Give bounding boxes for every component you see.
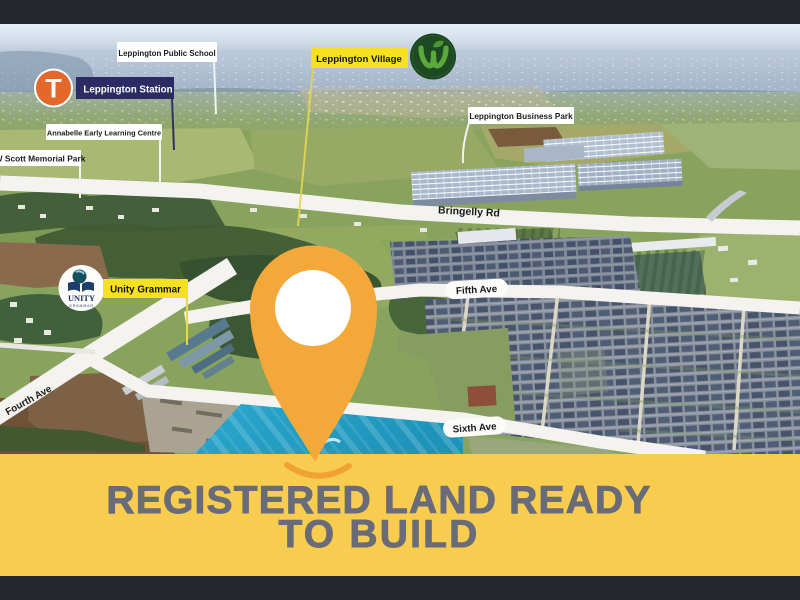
svg-text:T: T: [45, 74, 62, 104]
svg-text:Fifth Ave: Fifth Ave: [456, 284, 498, 297]
svg-text:Annabelle Early Learning Centr: Annabelle Early Learning Centre: [47, 129, 161, 138]
svg-text:Leppington Village: Leppington Village: [316, 54, 402, 65]
svg-text:W Scott Memorial Park: W Scott Memorial Park: [0, 154, 86, 164]
svg-text:TO BUILD: TO BUILD: [278, 513, 479, 556]
svg-text:Leppington Station: Leppington Station: [83, 85, 172, 96]
svg-text:GRAMMAR: GRAMMAR: [69, 304, 94, 308]
svg-text:Leppington Business Park: Leppington Business Park: [469, 112, 573, 121]
svg-text:Unity Grammar: Unity Grammar: [110, 285, 181, 296]
svg-text:UNITY: UNITY: [68, 294, 95, 303]
svg-text:Leppington Public School: Leppington Public School: [118, 49, 215, 58]
